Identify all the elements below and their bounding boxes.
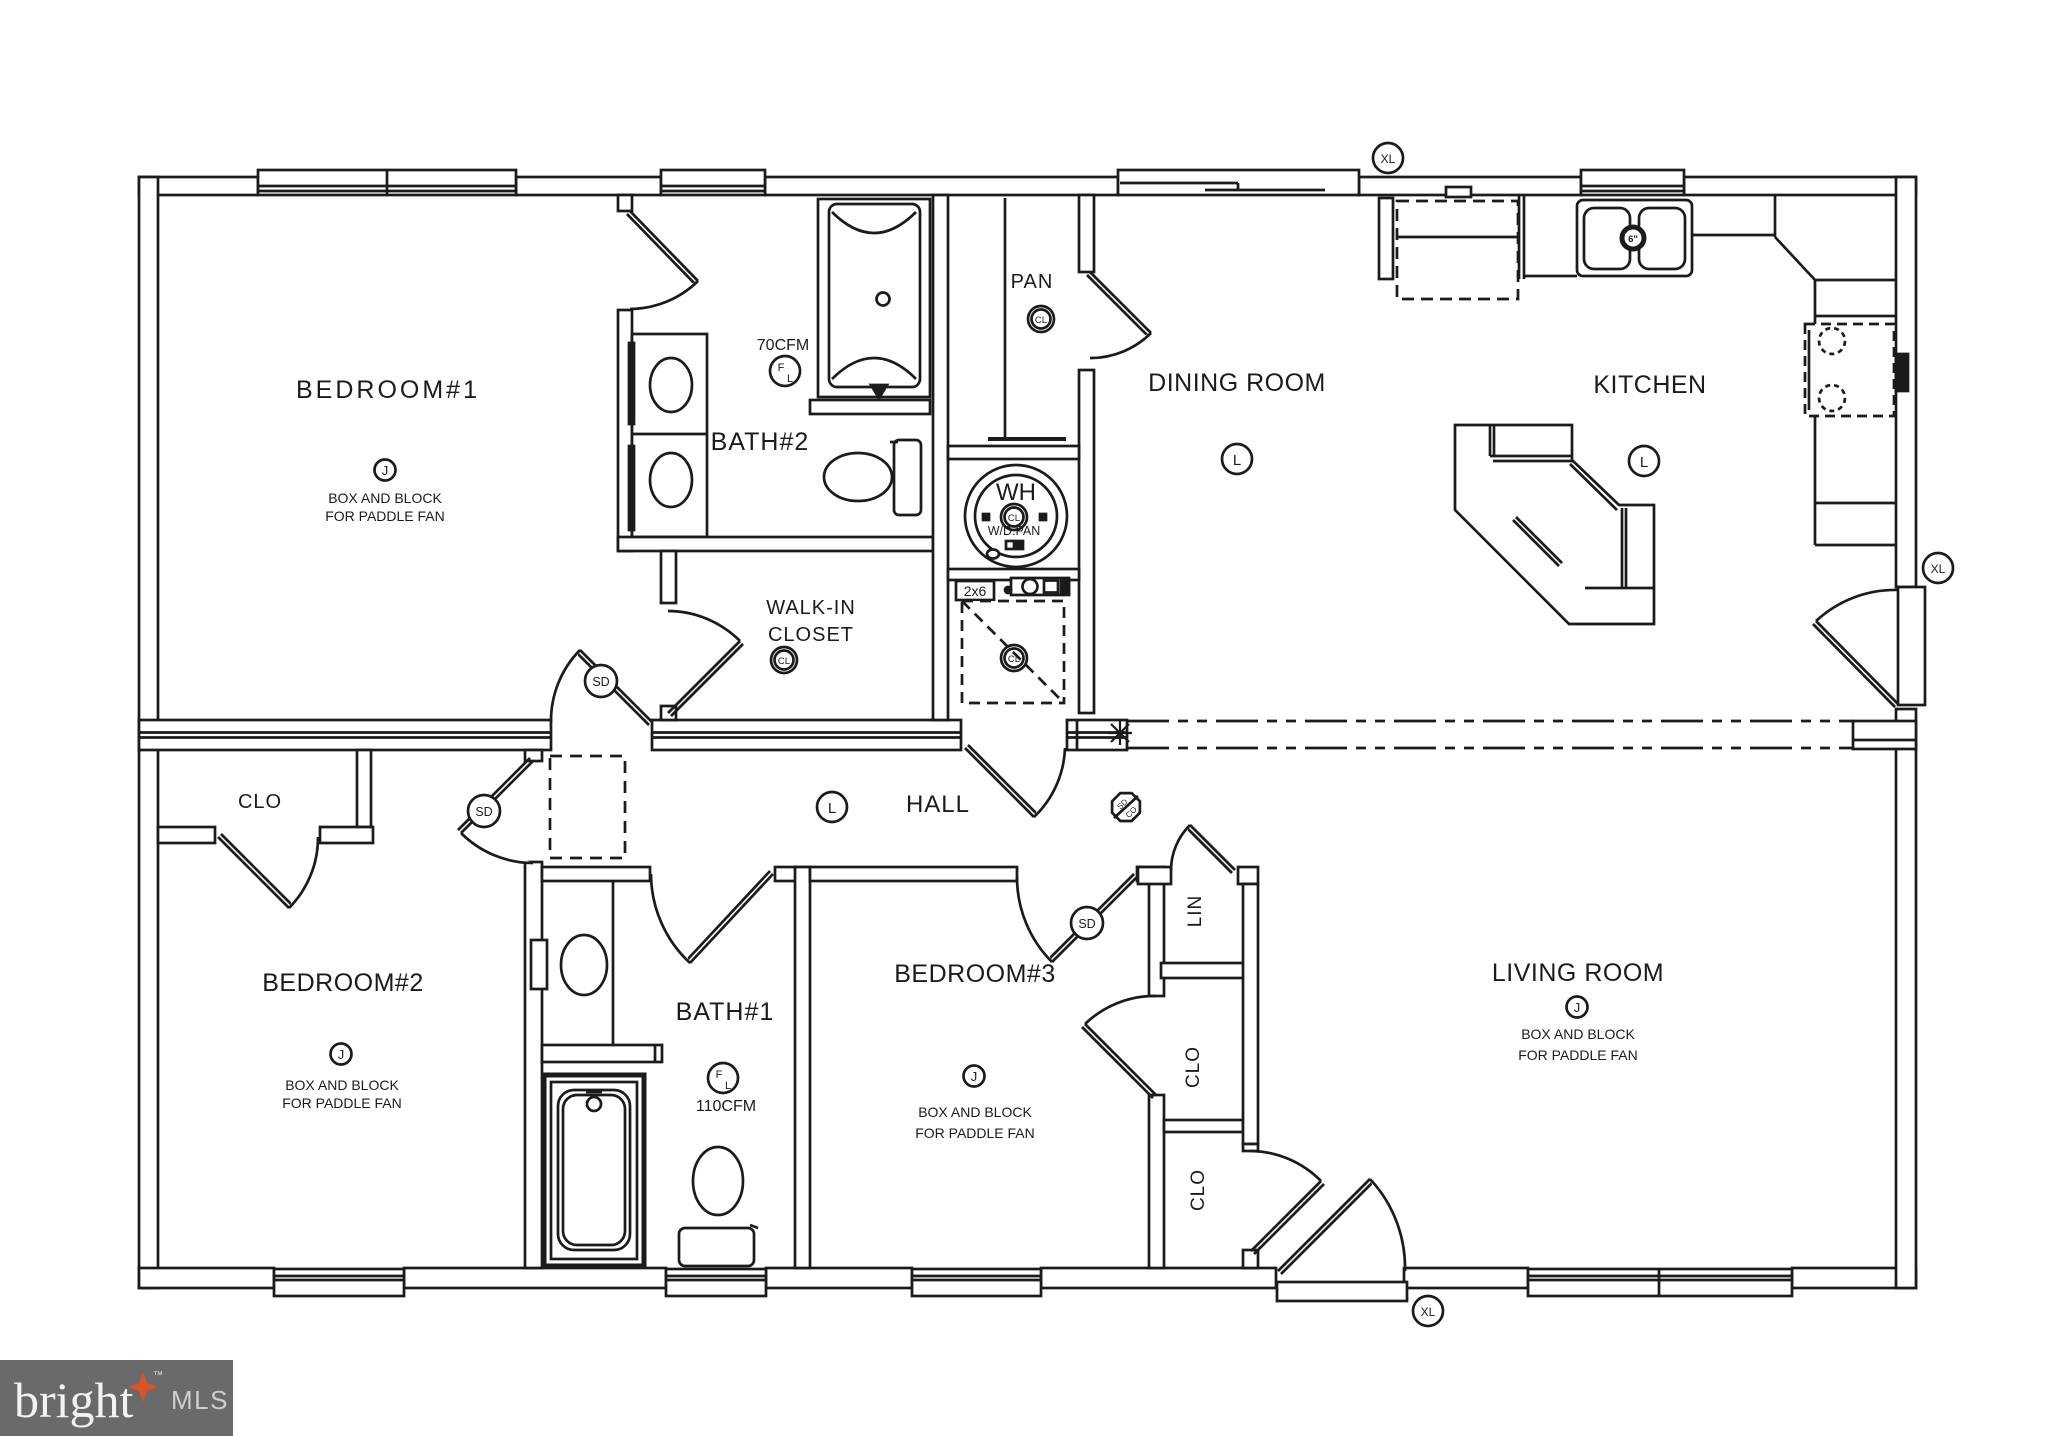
svg-text:J: J <box>1574 1000 1581 1015</box>
svg-text:J: J <box>338 1047 345 1062</box>
svg-text:SD: SD <box>592 675 609 689</box>
svg-text:BEDROOM#1: BEDROOM#1 <box>296 376 480 404</box>
svg-text:™: ™ <box>153 1370 163 1381</box>
svg-text:FOR PADDLE FAN: FOR PADDLE FAN <box>282 1095 402 1111</box>
svg-text:J: J <box>382 463 389 478</box>
svg-text:W/D.PAN: W/D.PAN <box>988 524 1041 538</box>
svg-text:BEDROOM#3: BEDROOM#3 <box>894 960 1055 988</box>
svg-text:XL: XL <box>1421 1305 1436 1319</box>
svg-text:LIVING ROOM: LIVING ROOM <box>1492 959 1664 987</box>
svg-text:FOR PADDLE FAN: FOR PADDLE FAN <box>1518 1047 1638 1063</box>
svg-text:DINING ROOM: DINING ROOM <box>1148 369 1326 397</box>
svg-text:CLO: CLO <box>1183 1046 1204 1088</box>
svg-text:WALK-IN: WALK-IN <box>766 597 856 619</box>
svg-text:SD: SD <box>1078 917 1095 931</box>
svg-text:FOR PADDLE FAN: FOR PADDLE FAN <box>325 508 445 524</box>
svg-text:WH: WH <box>996 479 1036 506</box>
svg-text:L: L <box>725 1080 731 1092</box>
svg-text:BATH#2: BATH#2 <box>711 428 810 456</box>
svg-text:CLO: CLO <box>1188 1169 1209 1211</box>
svg-text:BEDROOM#2: BEDROOM#2 <box>262 969 423 997</box>
svg-text:FOR PADDLE FAN: FOR PADDLE FAN <box>915 1125 1035 1141</box>
svg-text:2x6: 2x6 <box>964 583 987 599</box>
svg-text:LIN: LIN <box>1185 895 1206 928</box>
svg-text:CL: CL <box>1008 654 1020 665</box>
svg-text:L: L <box>1233 452 1241 469</box>
svg-text:BOX AND BLOCK: BOX AND BLOCK <box>285 1077 399 1093</box>
svg-text:L: L <box>828 800 836 817</box>
svg-text:XL: XL <box>1381 152 1396 166</box>
svg-text:6": 6" <box>1628 234 1638 245</box>
svg-text:J: J <box>971 1069 978 1084</box>
svg-text:F: F <box>778 362 785 374</box>
svg-text:BOX AND BLOCK: BOX AND BLOCK <box>1521 1026 1635 1042</box>
svg-text:110CFM: 110CFM <box>696 1098 756 1115</box>
svg-text:CL: CL <box>1008 513 1020 524</box>
svg-text:BOX AND BLOCK: BOX AND BLOCK <box>918 1104 1032 1120</box>
svg-text:PAN: PAN <box>1011 271 1054 293</box>
svg-text:HALL: HALL <box>906 791 970 818</box>
svg-text:XL: XL <box>1931 562 1946 576</box>
svg-text:BOX AND BLOCK: BOX AND BLOCK <box>328 490 442 506</box>
svg-text:70CFM: 70CFM <box>757 337 809 354</box>
svg-text:CLOSET: CLOSET <box>768 624 854 646</box>
svg-text:bright: bright <box>14 1372 134 1428</box>
svg-text:MLS: MLS <box>171 1385 229 1415</box>
svg-text:SD: SD <box>475 805 492 819</box>
svg-text:CLO: CLO <box>238 791 282 813</box>
svg-text:L: L <box>787 373 793 385</box>
svg-text:L: L <box>1640 454 1648 471</box>
svg-text:F: F <box>716 1069 723 1081</box>
svg-text:KITCHEN: KITCHEN <box>1593 371 1706 399</box>
svg-text:BATH#1: BATH#1 <box>676 998 775 1026</box>
svg-text:CL: CL <box>1035 315 1047 326</box>
svg-text:CL: CL <box>778 656 790 667</box>
